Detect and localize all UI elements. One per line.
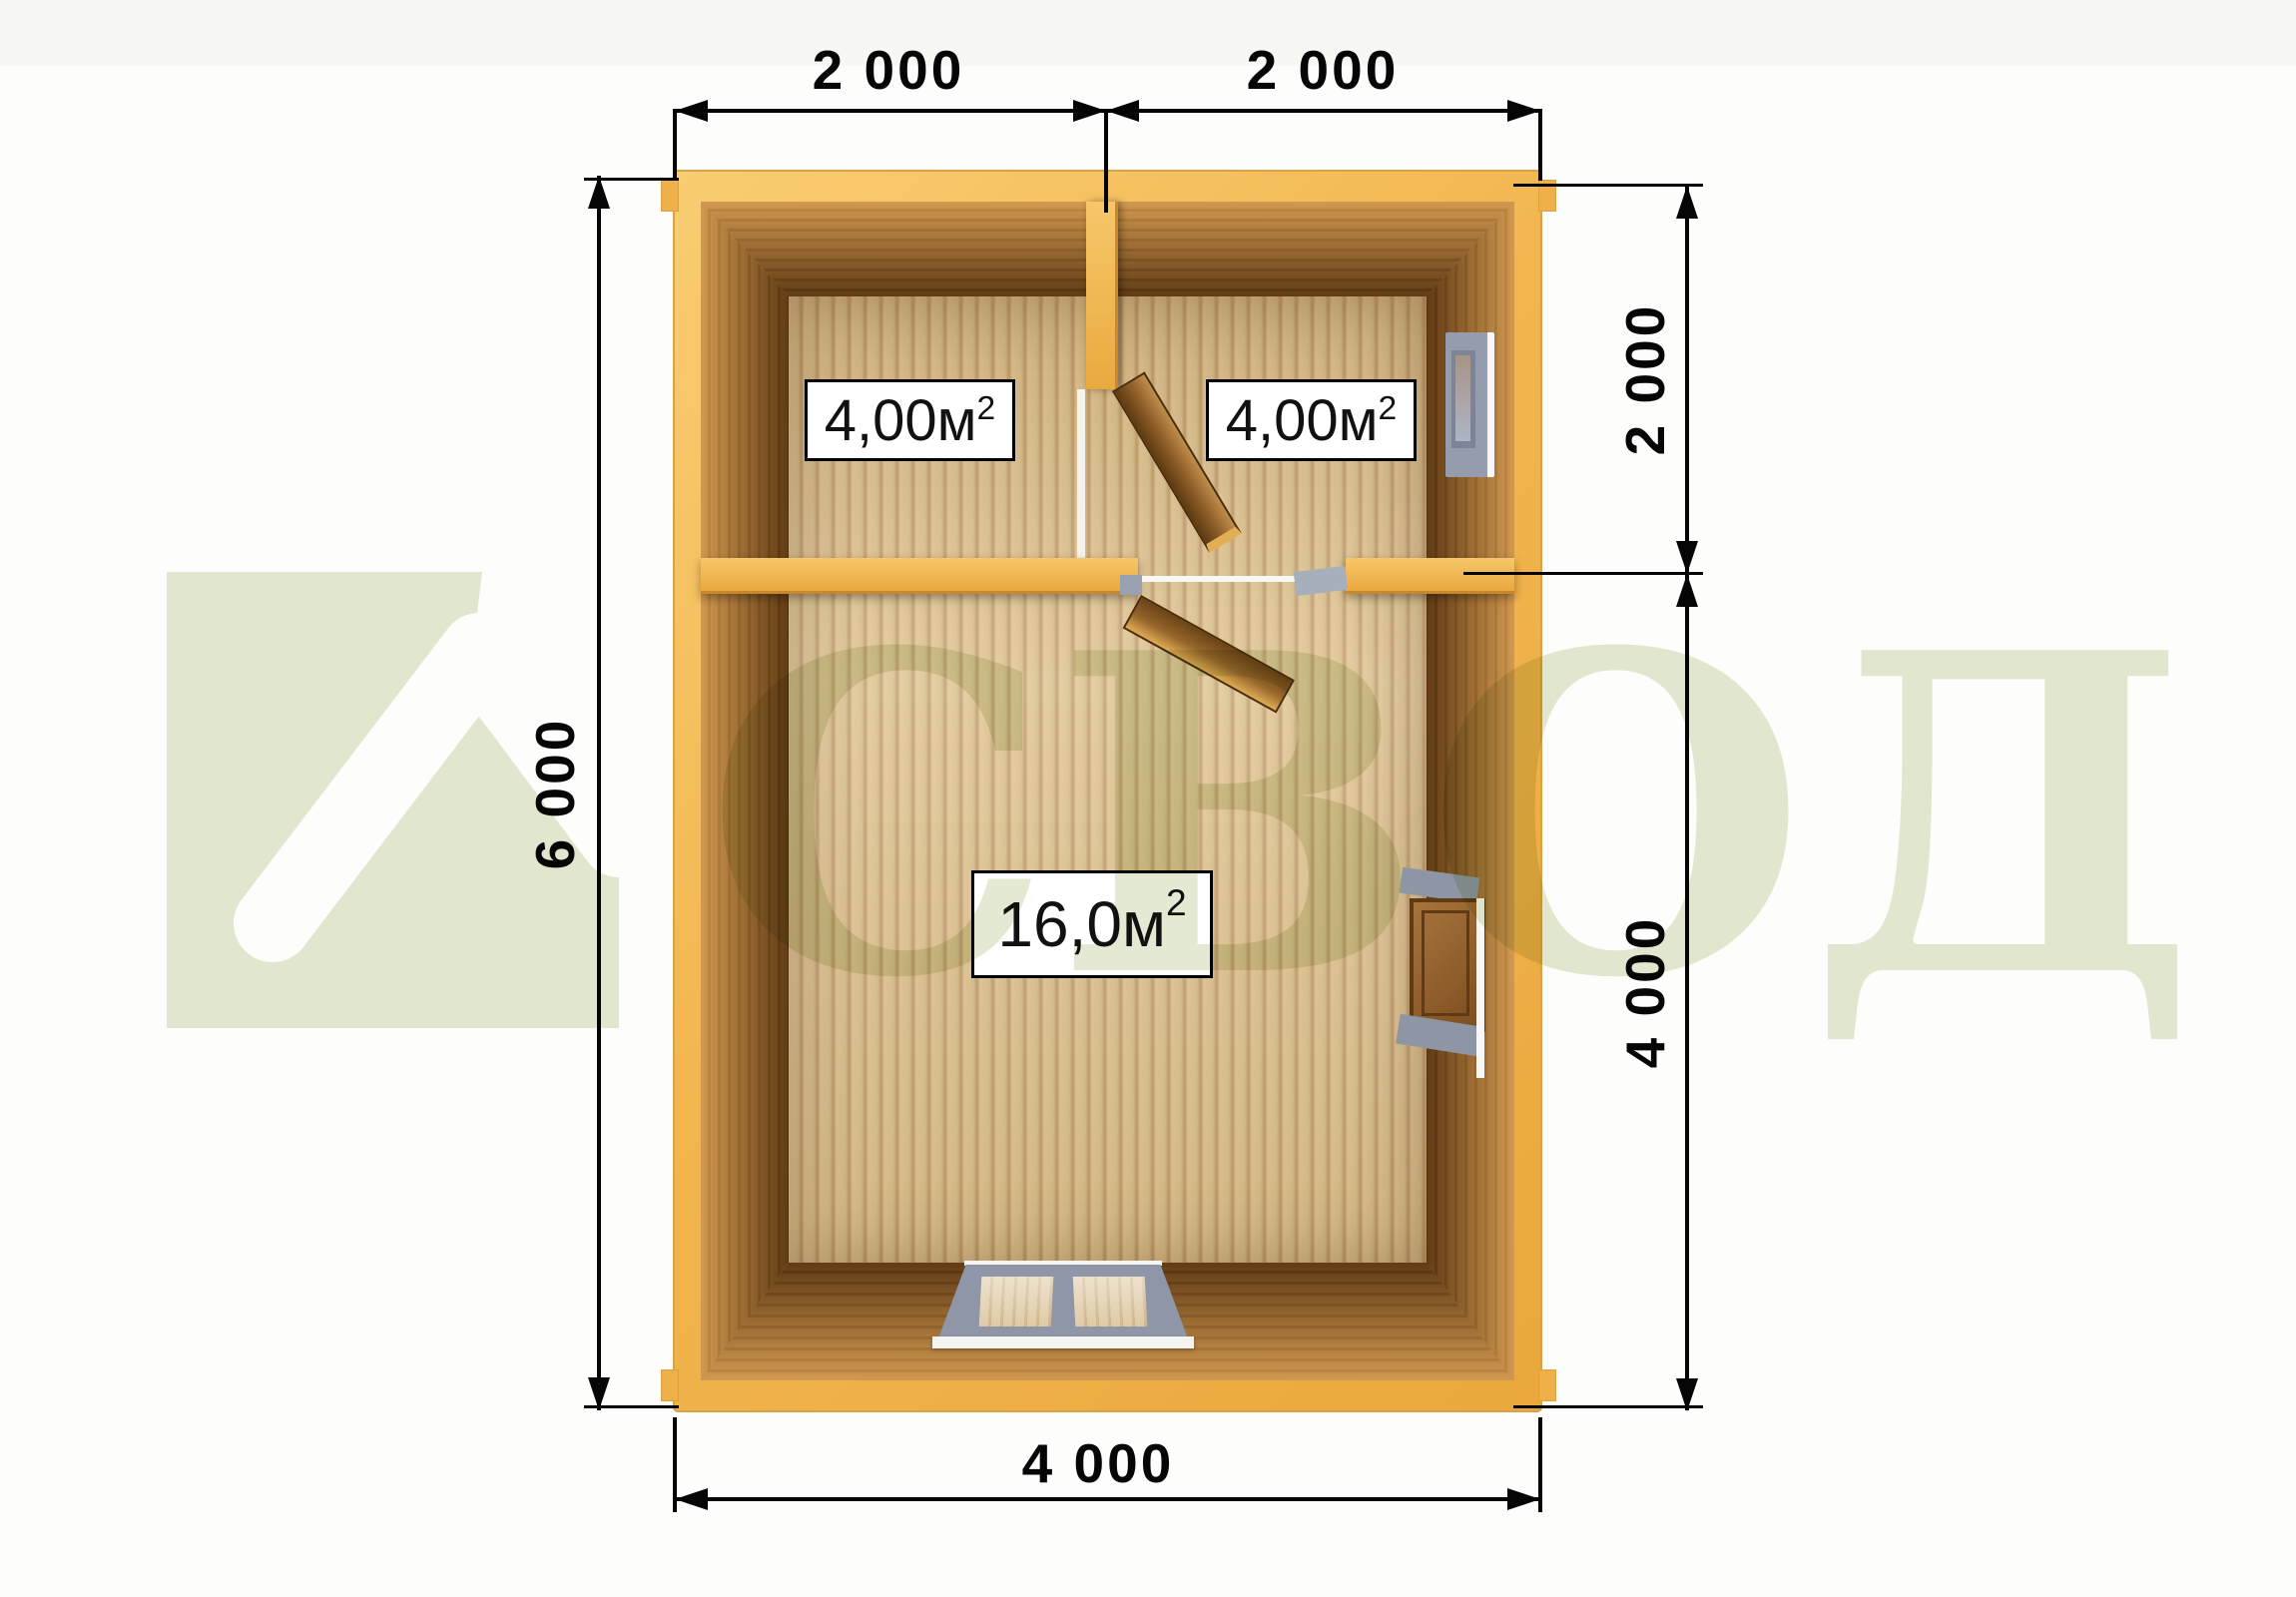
room-label-top-left: 4,00м2: [805, 379, 1015, 461]
watermark-letter: В: [1053, 597, 1425, 1036]
partition-vertical: [1086, 202, 1118, 389]
window-bottom: [938, 1261, 1188, 1352]
log-end-top-left: [661, 180, 679, 212]
window-bottom-sill: [932, 1336, 1194, 1348]
dim-label-bottom: 4 000: [898, 1433, 1298, 1493]
window-bottom-frame: [938, 1265, 1188, 1338]
dim-arrow: [588, 176, 610, 209]
dim-line-right-upper: [1685, 186, 1689, 574]
log-end-bottom-right: [1538, 1369, 1556, 1401]
dim-label-right-upper: 2 000: [1615, 230, 1675, 529]
watermark-text: С В О Д: [704, 584, 2166, 1048]
dim-witness-top-center: [1104, 109, 1108, 213]
dim-arrow: [675, 100, 708, 122]
house-roof-icon: [167, 572, 619, 1028]
window-top-right: [1445, 332, 1494, 477]
room-area-sup: 2: [977, 382, 996, 436]
watermark-letter: Д: [1807, 597, 2197, 1036]
room-area-sup: 2: [1379, 382, 1398, 436]
dim-witness-right-top: [1513, 184, 1703, 187]
window-top-right-sash: [1451, 350, 1475, 448]
dim-arrow: [1676, 1378, 1698, 1411]
window-top-right-glass: [1455, 355, 1470, 441]
window-bottom-pane-right: [1073, 1277, 1148, 1327]
door-jamb-vertical-partition: [1077, 389, 1085, 558]
room-area-value: 4,00м: [825, 387, 977, 454]
dim-arrow: [1507, 100, 1540, 122]
dim-line-top-right: [1106, 109, 1540, 113]
room-label-top-right: 4,00м2: [1206, 379, 1417, 461]
dim-label-top-left: 2 000: [689, 40, 1088, 100]
dim-witness-right-bottom: [1513, 1405, 1703, 1408]
dim-arrow: [1507, 1488, 1540, 1510]
room-area-value: 4,00м: [1226, 387, 1379, 454]
dim-line-bottom: [675, 1497, 1540, 1501]
watermark-letter: О: [1425, 597, 1807, 1036]
dim-arrow: [1073, 100, 1106, 122]
dim-arrow: [1106, 100, 1139, 122]
floor-plan-canvas: 4,00м2 4,00м2 16,0м2 2 000 2 000 6 000 2…: [0, 0, 2296, 1597]
dim-label-top-right: 2 000: [1123, 40, 1522, 100]
dim-arrow: [675, 1488, 708, 1510]
dim-line-top-left: [675, 109, 1106, 113]
window-bottom-pane-left: [979, 1277, 1054, 1327]
watermark-letter: С: [704, 597, 1053, 1036]
dim-arrow: [1676, 186, 1698, 219]
log-end-bottom-left: [661, 1369, 679, 1401]
dim-arrow: [588, 1377, 610, 1410]
